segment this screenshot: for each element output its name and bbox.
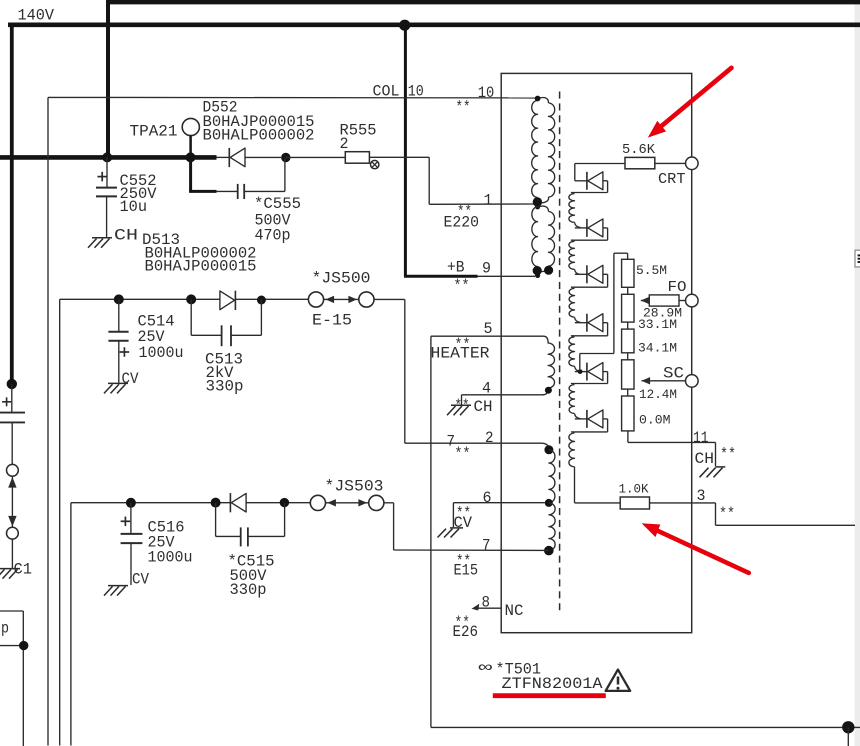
svg-text:1: 1 — [484, 192, 493, 210]
svg-text:*JS500: *JS500 — [312, 270, 371, 288]
svg-text:5.6K: 5.6K — [622, 142, 656, 158]
svg-text:CH: CH — [695, 450, 715, 468]
svg-text:FO: FO — [668, 279, 687, 296]
svg-text:C1: C1 — [14, 561, 33, 579]
svg-text:B0HAJP000015: B0HAJP000015 — [145, 258, 257, 276]
svg-text:12.4M: 12.4M — [639, 387, 677, 402]
svg-text:B0HALP000002: B0HALP000002 — [203, 127, 315, 145]
svg-text:4: 4 — [482, 380, 491, 398]
svg-text:p: p — [1, 620, 9, 638]
svg-text:1.0K: 1.0K — [619, 481, 649, 496]
svg-text:CRT: CRT — [658, 171, 686, 188]
svg-text:**: ** — [719, 505, 735, 523]
svg-text:10: 10 — [478, 84, 495, 102]
svg-text:470p: 470p — [255, 227, 291, 245]
svg-text:+B: +B — [447, 259, 465, 277]
svg-text:28.9M: 28.9M — [643, 306, 682, 321]
svg-text:2: 2 — [485, 429, 494, 447]
svg-text:330p: 330p — [230, 581, 267, 599]
svg-text:1000u: 1000u — [139, 344, 184, 362]
svg-text:140V: 140V — [18, 7, 55, 25]
svg-text:*C555: *C555 — [254, 195, 301, 213]
svg-text:**: ** — [455, 397, 470, 415]
svg-text:5.5M: 5.5M — [636, 263, 667, 278]
svg-text:10: 10 — [408, 83, 424, 101]
svg-text:E220: E220 — [444, 214, 480, 232]
svg-text:**: ** — [454, 277, 470, 295]
svg-text:2: 2 — [340, 135, 349, 153]
svg-text:NC: NC — [505, 602, 524, 620]
svg-text:*JS503: *JS503 — [325, 478, 384, 496]
svg-text:34.1M: 34.1M — [638, 340, 677, 355]
svg-text:7: 7 — [482, 537, 491, 555]
svg-text:HEATER: HEATER — [431, 345, 490, 363]
svg-text:E-15: E-15 — [312, 312, 352, 330]
svg-text:E15: E15 — [454, 562, 479, 580]
svg-text:**: ** — [455, 445, 471, 463]
svg-text:CV: CV — [132, 571, 149, 589]
svg-text:CV: CV — [122, 370, 139, 388]
svg-text:9: 9 — [482, 260, 491, 278]
svg-text:5: 5 — [484, 320, 493, 338]
svg-text:COL: COL — [373, 83, 400, 101]
svg-text:1000u: 1000u — [148, 549, 193, 567]
svg-text:330p: 330p — [206, 378, 244, 396]
svg-text:∞: ∞ — [479, 660, 493, 677]
svg-text:0.0M: 0.0M — [639, 413, 671, 428]
svg-text:SC: SC — [663, 365, 684, 383]
svg-text:TPA21: TPA21 — [130, 123, 178, 141]
svg-text:E26: E26 — [453, 623, 479, 641]
svg-text:CH: CH — [114, 227, 138, 245]
svg-text:ZTFN82001A: ZTFN82001A — [502, 675, 603, 693]
svg-text:6: 6 — [483, 489, 492, 507]
svg-text:10u: 10u — [120, 198, 148, 216]
svg-text:**: ** — [720, 446, 736, 464]
svg-text:CV: CV — [454, 514, 473, 532]
svg-text:11: 11 — [693, 429, 709, 447]
svg-text:**: ** — [456, 99, 471, 117]
svg-text:CH: CH — [474, 398, 493, 416]
svg-text:3: 3 — [697, 487, 706, 505]
